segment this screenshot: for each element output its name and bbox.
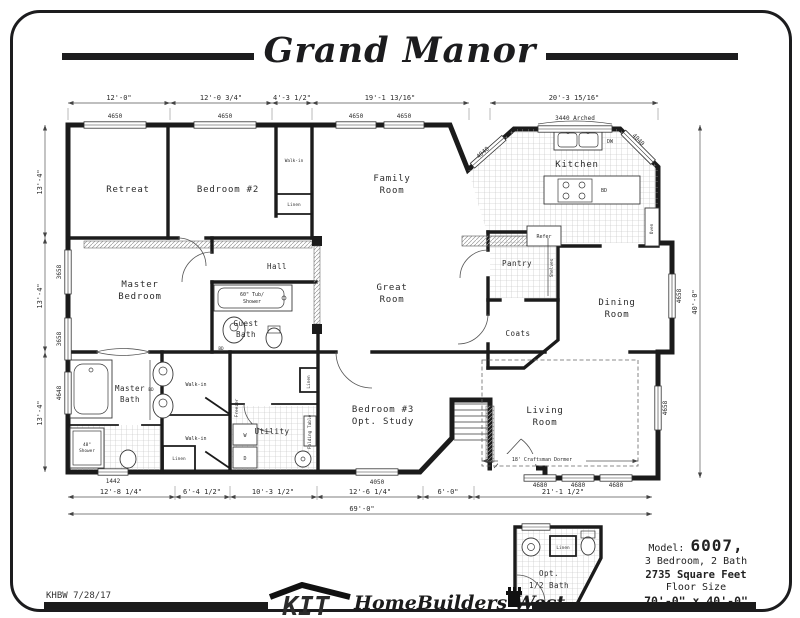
dim-overall-width: 69'-0" [349,505,374,513]
room-label-bedroom3-2: Opt. Study [352,417,414,427]
room-label-half-bath-2: 1/2 Bath [529,581,569,590]
room-label-master-bedroom-1: Master [121,280,158,290]
window-4650-4: 4650 [397,113,412,120]
footer-rule-right [532,602,756,609]
window-4648: 4648 [56,385,63,400]
window-3658-1: 3658 [56,264,63,279]
window-4658-2: 4658 [662,400,669,415]
title-rule-right [546,53,738,60]
room-label-dining-1: Dining [598,298,635,308]
refer-label: Refer [536,234,551,240]
room-label-living-2: Room [533,418,558,428]
window-4650-2: 4650 [218,113,233,120]
window-4650-3: 4650 [349,113,364,120]
master-tub [70,360,112,418]
room-label-hall: Hall [267,262,287,271]
dim-left-2: 13'-4" [36,283,44,308]
room-label-guest-bath-1: Guest [233,319,258,328]
plan-title: Grand Manor [264,30,537,71]
room-label-master-bath-2: Bath [120,395,140,404]
tub-label-2: Shower [243,299,261,305]
tub-label-1: 60" Tub/ [240,292,264,298]
dormer-label: 18' Craftsman Dormer [512,457,572,463]
dim-left-3: 13'-4" [36,400,44,425]
linen-label-half-bath: Linen [556,545,570,551]
dim-bottom-6: 21'-1 1/2" [542,488,584,496]
title-rule-left [62,53,254,60]
window-4050: 4050 [370,479,385,486]
entry-door-gap [492,463,536,473]
dim-top-4: 19'-1 13/16" [365,94,416,102]
window-4680-3: 4680 [609,482,624,489]
window-4650-1: 4650 [108,113,123,120]
walkin-label-bedroom2: Walk-in [285,158,304,164]
model-label: Model: [648,543,684,554]
window-4658-1: 4658 [676,288,683,303]
master-shower [70,428,104,468]
linen-label-utility: Linen [306,375,312,389]
dim-top-5: 20'-3 15/16" [549,94,600,102]
room-label-great-2: Room [380,295,405,305]
half-bath-toilet [581,537,595,555]
room-label-guest-bath-2: Bath [236,330,256,339]
room-label-master-bedroom-2: Bedroom [118,292,162,302]
bd-label-guest: BD [218,346,224,352]
floor-plan-svg: 18' Craftsman Dormer [0,0,800,618]
room-label-family-2: Room [380,186,405,196]
dim-top-2: 12'-0 3/4" [200,94,242,102]
half-bath-sink [522,538,540,556]
room-label-bedroom2: Bedroom #2 [197,185,259,195]
room-label-family-1: Family [373,174,410,184]
room-label-coats: Coats [505,329,530,338]
walkin-label-2: Walk-in [185,436,206,442]
walkin-label-1: Walk-in [185,382,206,388]
dim-left-1: 13'-4" [36,169,44,194]
room-label-kitchen: Kitchen [555,160,599,170]
guest-toilet [266,328,282,348]
room-label-half-bath-1: Opt. [539,569,559,578]
dim-bottom-3: 10'-3 1/2" [252,488,294,496]
master-sink-1 [153,362,173,386]
dim-bottom-2: 6'-4 1/2" [183,488,221,496]
kit-logo-text: KIT [282,592,331,618]
tower-icon [505,587,523,607]
dim-bottom-5: 6'-0" [437,488,458,496]
freezer-label: Freezer [234,398,240,417]
dim-top-1: 12'-0" [106,94,131,102]
dim-bottom-1: 12'-8 1/4" [100,488,142,496]
room-label-retreat: Retreat [106,185,150,195]
kit-logo-svg: KIT [268,582,352,618]
dim-bottom-4: 12'-6 1/4" [349,488,391,496]
sqft-line: 2735 Square Feet [612,569,780,582]
master-toilet [120,450,136,468]
oven-label: Oven [649,223,655,234]
shelves-label: Shelves [549,258,555,277]
model-number: 6007, [690,536,743,555]
folding-table-label: Folding Table [307,414,313,449]
linen-label-bedroom2: Linen [287,202,301,208]
shower-label-2: Shower [79,448,95,454]
dryer-label: D [243,456,246,462]
room-label-master-bath-1: Master [115,384,145,393]
dw-label: DW [607,139,614,145]
drawing-code: KHBW 7/28/17 [46,591,111,601]
window-1442: 1442 [106,478,121,485]
model-info: Model: 6007, 3 Bedroom, 2 Bath 2735 Squa… [612,536,780,609]
footer-rule-left [44,602,268,609]
window-3658-2: 3658 [56,331,63,346]
kit-logo: KIT [268,582,352,618]
guest-tub [214,285,292,311]
blueprint-page: Grand Manor [0,0,800,618]
bed-bath-line: 3 Bedroom, 2 Bath [612,556,780,569]
room-label-living-1: Living [526,406,563,416]
room-label-great-1: Great [376,283,407,293]
master-sink-2 [153,394,173,418]
room-label-utility: Utility [254,427,289,436]
room-label-bedroom3-1: Bedroom #3 [352,405,414,415]
model-line: Model: 6007, [612,536,780,556]
dim-right-overall: 40'-0" [691,289,699,314]
dim-top-3: 4'-3 1/2" [273,94,311,102]
floor-size-label: Floor Size [612,582,780,595]
arched-window-label: 3440 Arched [555,115,595,122]
room-label-dining-2: Room [605,310,630,320]
room-label-pantry: Pantry [502,259,532,268]
title-block: Grand Manor [0,30,800,71]
linen-label-master: Linen [172,456,186,462]
shower-label-1: 48" [83,442,91,448]
bd-label-master: BD [148,387,154,393]
water-heater [295,451,311,467]
bd-label-kitchen: BD [601,188,607,194]
